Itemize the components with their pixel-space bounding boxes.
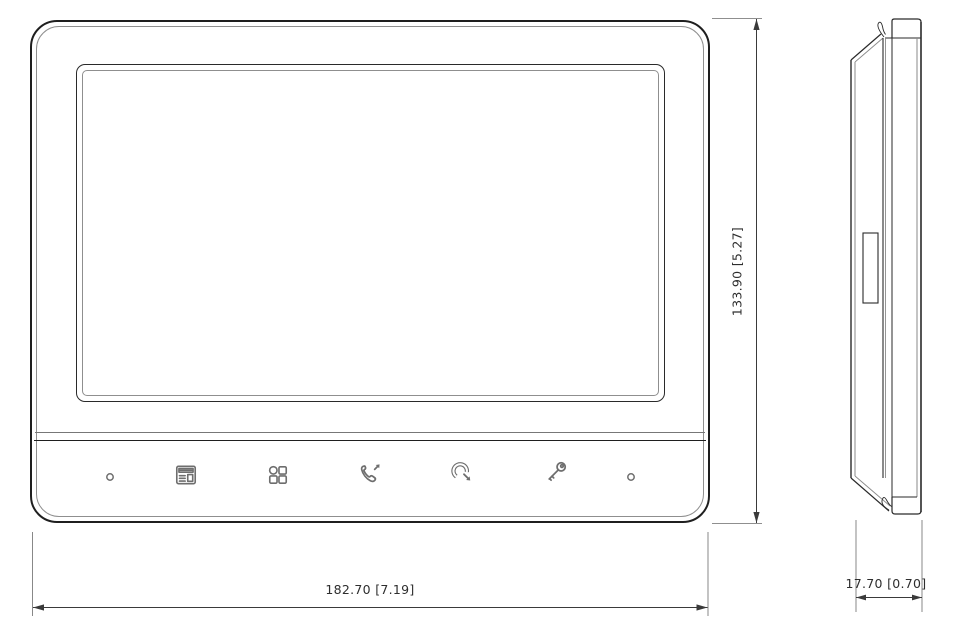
top-cap bbox=[892, 19, 921, 38]
panel-groove-line bbox=[35, 432, 705, 433]
key-unlock-icon bbox=[542, 458, 570, 486]
menu-grid-icon bbox=[265, 462, 291, 488]
bottom-cap bbox=[892, 497, 921, 514]
monitor-icon bbox=[173, 462, 199, 488]
mounting-recess bbox=[863, 233, 878, 303]
side-view bbox=[845, 8, 930, 568]
call-end-button bbox=[447, 458, 477, 488]
small-circle-led bbox=[624, 470, 638, 484]
call-answer-button bbox=[356, 460, 384, 488]
unlock-button bbox=[542, 458, 570, 486]
phone-answer-icon bbox=[356, 460, 384, 488]
phone-hangup-icon bbox=[447, 458, 477, 488]
monitor-button bbox=[173, 462, 199, 488]
width-dimension-label: 182.70 [7.19] bbox=[270, 582, 470, 597]
screen-bezel bbox=[76, 64, 665, 402]
height-dimension-label: 133.90 [5.27] bbox=[730, 172, 745, 372]
top-chamfer bbox=[851, 34, 881, 60]
screen-display bbox=[82, 70, 659, 396]
top-curl-detail bbox=[878, 22, 886, 37]
technical-drawing: 182.70 [7.19] 133.90 [5.27] 17.70 [0.70] bbox=[0, 0, 960, 629]
front-view bbox=[30, 20, 710, 523]
small-circle-led bbox=[103, 470, 117, 484]
width-dimension-lines bbox=[33, 532, 709, 616]
depth-dimension-label: 17.70 [0.70] bbox=[816, 576, 956, 591]
control-panel-separator bbox=[34, 440, 706, 441]
menu-button bbox=[265, 462, 291, 488]
led-indicator-right bbox=[624, 470, 638, 484]
led-indicator-left bbox=[103, 470, 117, 484]
side-profile-outline bbox=[845, 8, 930, 568]
